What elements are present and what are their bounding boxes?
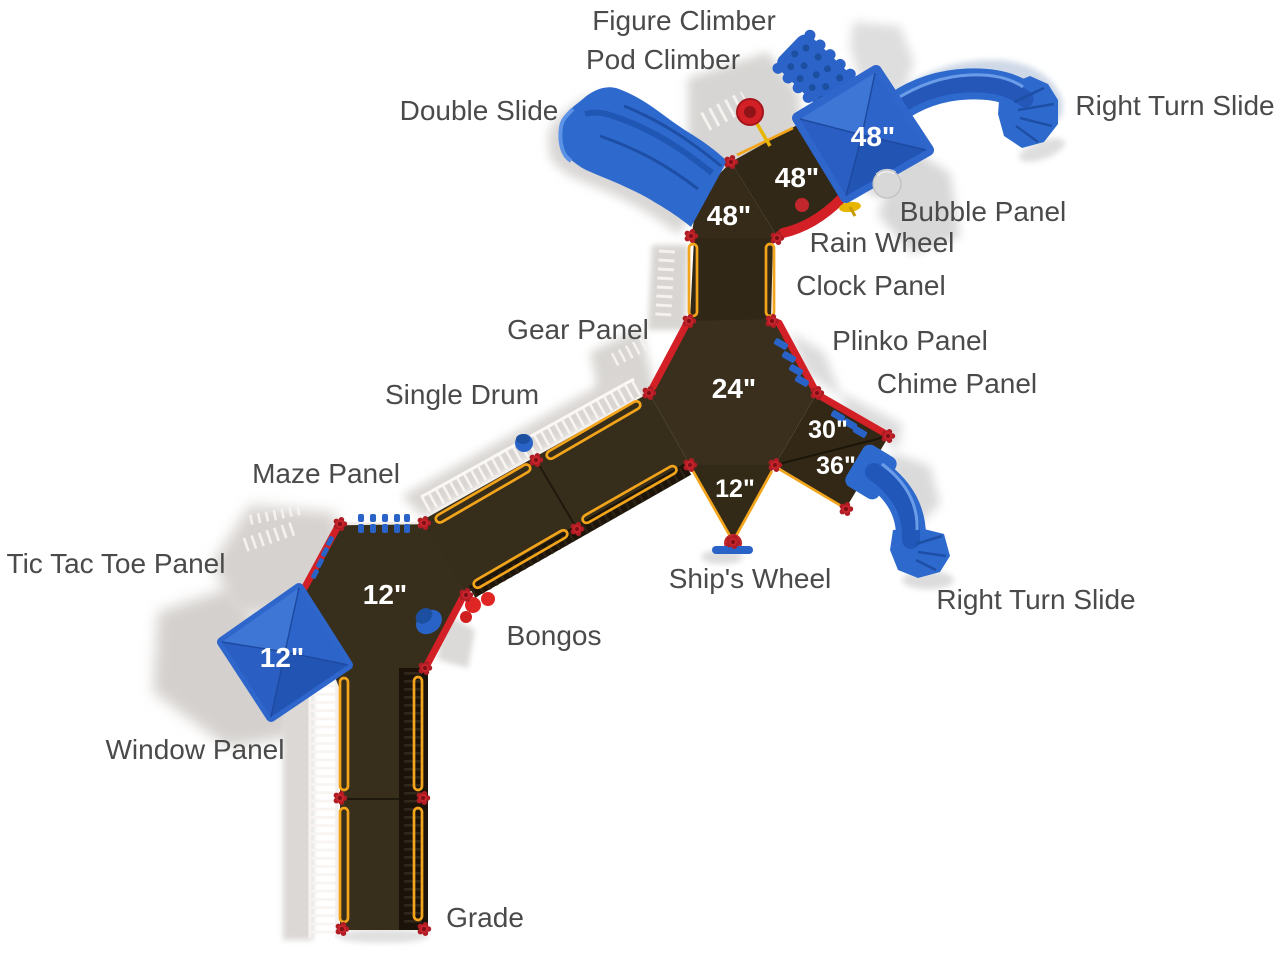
svg-text:Single Drum: Single Drum <box>385 379 539 410</box>
svg-text:Tic Tac Toe Panel: Tic Tac Toe Panel <box>7 548 226 579</box>
svg-text:24": 24" <box>712 373 756 404</box>
svg-text:30": 30" <box>808 416 848 444</box>
svg-text:Figure Climber: Figure Climber <box>592 5 776 36</box>
svg-text:48": 48" <box>707 200 751 231</box>
svg-text:12": 12" <box>715 475 755 503</box>
svg-text:Grade: Grade <box>446 902 524 933</box>
svg-text:Chime Panel: Chime Panel <box>877 368 1037 399</box>
svg-text:Bongos: Bongos <box>507 620 602 651</box>
svg-text:Maze Panel: Maze Panel <box>252 458 400 489</box>
svg-text:Bubble Panel: Bubble Panel <box>900 196 1067 227</box>
svg-text:Clock Panel: Clock Panel <box>796 270 945 301</box>
svg-text:Rain Wheel: Rain Wheel <box>810 227 955 258</box>
svg-text:36": 36" <box>816 452 856 480</box>
svg-text:Right Turn Slide: Right Turn Slide <box>936 584 1135 615</box>
svg-text:Ship's Wheel: Ship's Wheel <box>669 563 832 594</box>
svg-text:Right Turn Slide: Right Turn Slide <box>1075 90 1274 121</box>
svg-text:48": 48" <box>775 162 819 193</box>
svg-text:Window Panel: Window Panel <box>106 734 285 765</box>
svg-text:Double Slide: Double Slide <box>400 95 559 126</box>
svg-text:48": 48" <box>851 121 895 152</box>
svg-text:12": 12" <box>363 579 407 610</box>
svg-text:Pod Climber: Pod Climber <box>586 44 740 75</box>
svg-text:Gear Panel: Gear Panel <box>507 314 649 345</box>
svg-text:Plinko Panel: Plinko Panel <box>832 325 988 356</box>
svg-text:12": 12" <box>260 642 304 673</box>
